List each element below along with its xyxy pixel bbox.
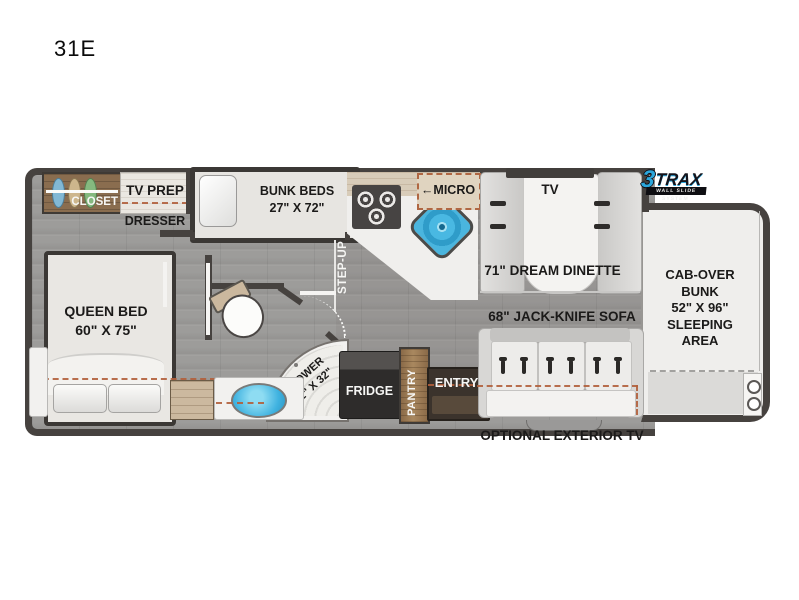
seatbelt-icon	[522, 360, 526, 374]
sofa-seat-front	[486, 390, 636, 417]
queen-label-line2: 60" X 75"	[46, 321, 166, 340]
cab-dash-area	[648, 372, 758, 414]
circle-icon	[747, 380, 761, 394]
cab-trim-line	[759, 211, 760, 371]
bunk-label: BUNK BEDS 27" X 72"	[247, 183, 347, 217]
sofa-cushion	[585, 341, 632, 391]
armrest-icon	[490, 201, 506, 206]
seatbelt-icon	[501, 360, 505, 374]
queen-label-line1: QUEEN BED	[46, 302, 166, 321]
fridge: FRIDGE	[339, 351, 402, 419]
vanity-slide-dash	[216, 402, 264, 404]
trax-logo: 3 TRAX WALL SLIDE SYSTEM	[640, 170, 715, 196]
micro-text: MICRO	[433, 183, 475, 197]
bed-pillow	[53, 384, 107, 413]
tv-prep-cabinet: TV PREP	[120, 172, 192, 214]
bunk-pillow	[199, 175, 237, 227]
step-edge	[334, 240, 336, 312]
floorplan-diagram: 31E CLOSET TV PREP DRESSER BUNK BEDS 27"…	[0, 0, 799, 600]
closet: CLOSET	[42, 172, 124, 214]
seatbelt-icon	[569, 360, 573, 374]
burner-icon	[379, 191, 396, 208]
dresser-slide-dash	[122, 202, 188, 204]
armrest-icon	[594, 224, 610, 229]
armrest-icon	[490, 224, 506, 229]
pantry: PANTRY	[399, 347, 430, 424]
model-label: 31E	[54, 36, 96, 62]
bunk-bed: BUNK BEDS 27" X 72"	[190, 167, 360, 243]
dinette-tv-label: TV	[532, 182, 568, 198]
trax-logo-tagline: WALL SLIDE SYSTEM	[646, 187, 707, 195]
dinette-slide-edge	[480, 291, 640, 293]
sofa-slide-dash	[477, 385, 638, 387]
fridge-label: FRIDGE	[340, 384, 399, 398]
pantry-label: PANTRY	[406, 354, 419, 416]
bed-closet-door	[163, 262, 167, 307]
seatbelt-icon	[595, 360, 599, 374]
dinette-tv-mount	[506, 168, 594, 178]
stove	[352, 185, 401, 229]
circle-icon	[747, 397, 761, 411]
seatbelt-icon	[548, 360, 552, 374]
bath-door-panel	[300, 291, 336, 295]
step-up-label: STEP-UP	[337, 238, 350, 294]
sofa-slide-dash-vertical	[636, 385, 638, 415]
bunk-label-line1: BUNK BEDS	[247, 183, 347, 200]
queen-bed-label: QUEEN BED 60" X 75"	[46, 302, 166, 340]
bedroom-cabinet	[170, 380, 214, 420]
burner-icon	[368, 208, 385, 225]
bed-pillow	[108, 384, 161, 413]
sink-drain	[438, 223, 446, 231]
burner-icon	[357, 191, 374, 208]
vanity-sink	[231, 383, 287, 418]
showerhead-icon	[294, 363, 298, 367]
sofa-cushion	[538, 341, 585, 391]
sofa-cushion	[491, 341, 538, 391]
microwave-box: ←MICRO	[417, 173, 481, 210]
dinette-label: 71" DREAM DINETTE	[455, 263, 650, 279]
nightstand	[29, 347, 48, 417]
sofa-label: 68" JACK-KNIFE SOFA	[462, 309, 662, 325]
cab-over-label: CAB-OVER BUNK 52" X 96" SLEEPING AREA	[650, 267, 750, 350]
seatbelt-icon	[616, 360, 620, 374]
entry-label: ENTRY	[428, 376, 485, 391]
closet-label: CLOSET	[60, 196, 118, 209]
bath-hall-wall	[160, 230, 193, 237]
closet-rod	[46, 190, 118, 193]
bunk-label-line2: 27" X 72"	[247, 200, 347, 217]
cab-step-panel	[743, 373, 762, 416]
dresser-label: DRESSER	[122, 214, 188, 228]
tv-prep-label: TV PREP	[121, 183, 189, 199]
micro-arrow-icon: ←	[421, 183, 434, 197]
exterior-tv-label: OPTIONAL EXTERIOR TV	[462, 428, 662, 444]
vanity	[214, 377, 304, 420]
armrest-icon	[594, 201, 610, 206]
entry-step-tread	[432, 396, 481, 414]
microwave-label: ←MICRO	[419, 183, 477, 197]
sofa-back	[490, 328, 630, 342]
